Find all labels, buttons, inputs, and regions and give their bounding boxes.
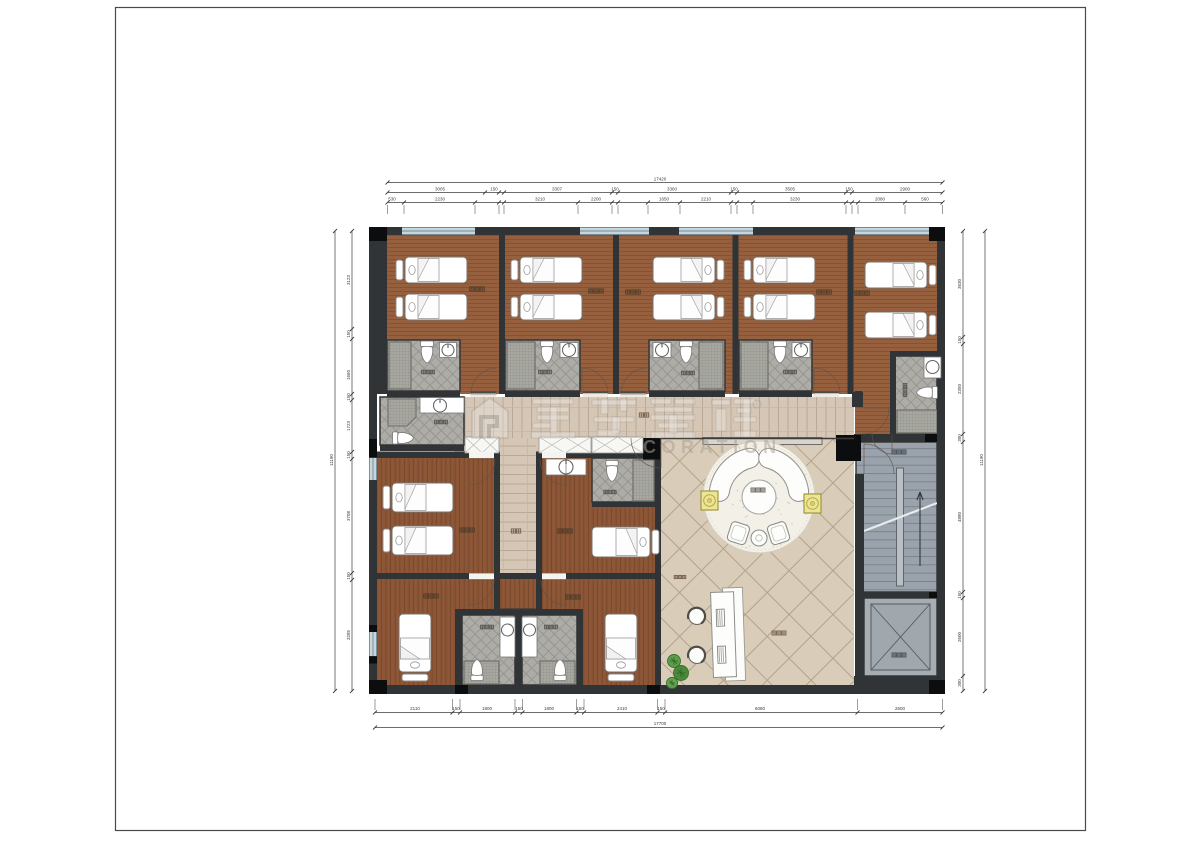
svg-text:2230: 2230: [435, 197, 446, 202]
svg-text:2600: 2600: [957, 631, 962, 642]
svg-text:3123: 3123: [346, 274, 351, 285]
svg-text:17420: 17420: [654, 177, 667, 182]
svg-text:2900: 2900: [900, 187, 911, 192]
svg-text:2080: 2080: [875, 197, 886, 202]
svg-text:CORATION: CORATION: [643, 437, 782, 457]
svg-text:3360: 3360: [667, 187, 678, 192]
svg-text:2210: 2210: [701, 197, 712, 202]
svg-text:3285: 3285: [346, 629, 351, 640]
svg-text:3630: 3630: [957, 278, 962, 289]
svg-text:1800: 1800: [544, 706, 555, 711]
svg-text:2410: 2410: [617, 706, 628, 711]
svg-text:1660: 1660: [346, 369, 351, 380]
svg-text:2110: 2110: [410, 706, 420, 711]
svg-text:2350: 2350: [957, 383, 962, 394]
svg-text:3210: 3210: [535, 197, 546, 202]
svg-text:6080: 6080: [755, 706, 766, 711]
svg-text:17700: 17700: [654, 721, 667, 726]
svg-text:150: 150: [452, 706, 460, 711]
svg-text:150: 150: [730, 187, 738, 192]
svg-text:3505: 3505: [785, 187, 796, 192]
svg-text:1650: 1650: [659, 197, 670, 202]
svg-text:3307: 3307: [552, 187, 563, 192]
svg-text:1800: 1800: [482, 706, 493, 711]
svg-text:3708: 3708: [346, 510, 351, 521]
svg-text:150: 150: [957, 591, 962, 599]
svg-text:3005: 3005: [435, 187, 446, 192]
svg-text:150: 150: [515, 706, 523, 711]
svg-text:11190: 11190: [329, 454, 334, 466]
svg-text:150: 150: [576, 706, 584, 711]
svg-text:530: 530: [388, 197, 396, 202]
svg-text:11190: 11190: [979, 454, 984, 466]
svg-text:2600: 2600: [895, 706, 906, 711]
svg-text:150: 150: [346, 572, 351, 580]
svg-text:150: 150: [657, 706, 665, 711]
svg-text:150: 150: [611, 187, 619, 192]
svg-text:300: 300: [957, 434, 962, 442]
svg-text:150: 150: [490, 187, 498, 192]
svg-text:3230: 3230: [790, 197, 801, 202]
svg-text:150: 150: [346, 330, 351, 338]
svg-text:2200: 2200: [591, 197, 602, 202]
svg-text:150: 150: [346, 393, 351, 401]
svg-text:150: 150: [957, 336, 962, 344]
svg-text:150: 150: [845, 187, 853, 192]
svg-text:560: 560: [921, 197, 929, 202]
svg-text:4880: 4880: [957, 511, 962, 522]
svg-text:150: 150: [346, 451, 351, 459]
svg-text:300: 300: [957, 679, 962, 687]
svg-text:1723: 1723: [346, 420, 351, 431]
